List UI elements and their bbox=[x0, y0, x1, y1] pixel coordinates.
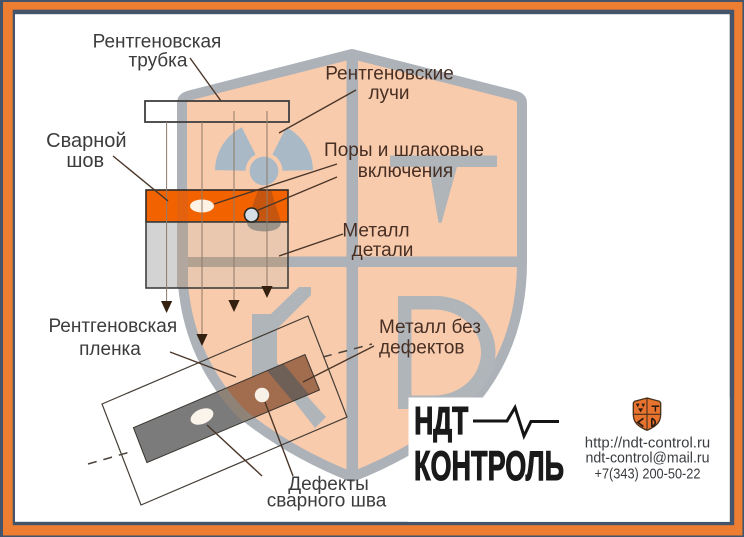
svg-text:Рентгеновская: Рентгеновская bbox=[48, 316, 177, 337]
svg-text:Рентгеновские: Рентгеновские bbox=[325, 64, 454, 85]
svg-text:Металл без: Металл без bbox=[379, 317, 481, 338]
svg-text:шов: шов bbox=[66, 150, 104, 172]
svg-text:детали: детали bbox=[352, 240, 414, 261]
svg-text:+7(343) 200-50-22: +7(343) 200-50-22 bbox=[595, 465, 701, 482]
svg-text:Поры и шлаковые: Поры и шлаковые bbox=[324, 140, 484, 161]
svg-text:дефектов: дефектов bbox=[379, 338, 465, 359]
svg-text:пленка: пленка bbox=[79, 339, 141, 360]
svg-text:Сварной: Сварной bbox=[46, 130, 126, 152]
svg-text:ndt-control@mail.ru: ndt-control@mail.ru bbox=[586, 450, 710, 467]
svg-text:сварного шва: сварного шва bbox=[267, 490, 387, 511]
svg-text:Металл: Металл bbox=[342, 221, 409, 242]
svg-text:НДТ: НДТ bbox=[414, 400, 468, 443]
svg-text:Рентгеновская: Рентгеновская bbox=[93, 32, 222, 53]
svg-text:лучи: лучи bbox=[368, 83, 409, 104]
svg-text:КОНТРОЛЬ: КОНТРОЛЬ bbox=[414, 442, 564, 489]
svg-text:трубка: трубка bbox=[129, 51, 188, 72]
svg-text:включения: включения bbox=[358, 161, 453, 182]
